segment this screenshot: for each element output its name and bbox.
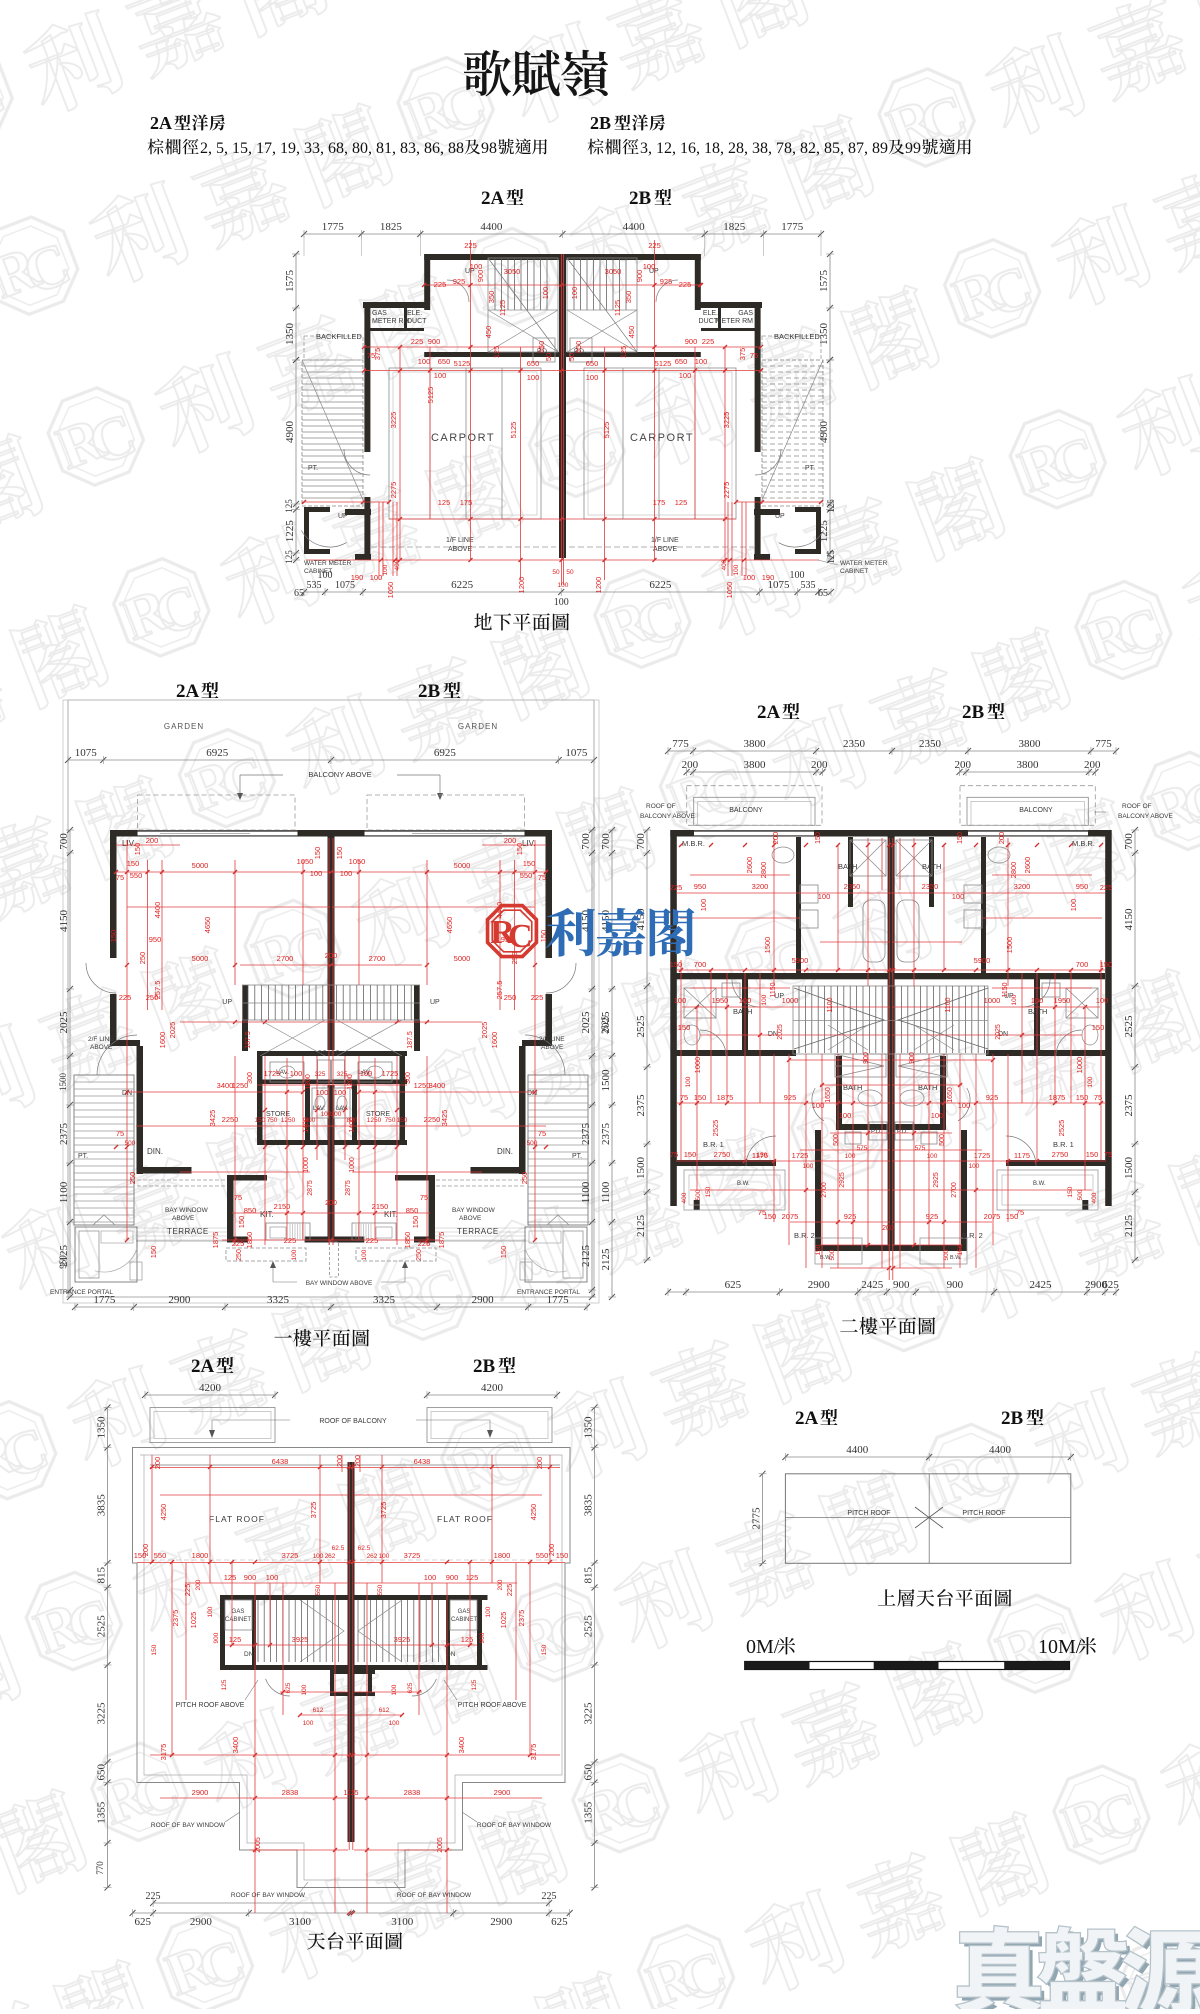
svg-text:2, 5, 15, 17, 19, 33, 68, 80,: 2, 5, 15, 17, 19, 33, 68, 80, 81, 83, 86… [200,140,464,157]
svg-text:2900: 2900 [494,1788,511,1797]
svg-text:2925: 2925 [933,1172,940,1188]
svg-text:2350: 2350 [844,882,861,891]
svg-text:1500: 1500 [58,1073,68,1092]
svg-text:200: 200 [997,832,1006,845]
svg-text:2075: 2075 [782,1212,799,1221]
svg-text:200: 200 [771,832,780,845]
svg-text:125: 125 [826,499,836,513]
svg-text:1650: 1650 [825,1087,832,1103]
svg-text:950: 950 [1076,882,1089,891]
svg-text:2B: 2B [590,113,611,133]
svg-text:150: 150 [133,843,142,856]
svg-text:2250: 2250 [424,1115,441,1124]
svg-text:225: 225 [1100,883,1113,892]
svg-text:100: 100 [310,869,323,878]
svg-text:900: 900 [685,337,698,346]
svg-text:ENTRANCE PORTAL: ENTRANCE PORTAL [50,1289,113,1296]
svg-text:625: 625 [135,1916,152,1928]
svg-text:1/F LINE: 1/F LINE [446,537,474,544]
svg-text:225: 225 [434,280,447,289]
svg-text:1575: 1575 [818,270,830,293]
svg-text:100: 100 [699,899,708,912]
svg-text:2275: 2275 [389,482,398,499]
svg-text:ROOF OF BAY WINDOW: ROOF OF BAY WINDOW [151,1822,226,1829]
svg-text:150: 150 [539,930,548,943]
svg-text:175: 175 [460,498,473,507]
svg-text:5000: 5000 [454,861,471,870]
svg-text:2600: 2600 [745,857,754,874]
svg-text:900: 900 [635,270,644,283]
svg-text:2A: 2A [150,113,172,133]
svg-text:3175: 3175 [529,1744,538,1761]
svg-text:2375: 2375 [580,1123,592,1146]
svg-text:2/F LINE: 2/F LINE [88,1036,114,1043]
svg-text:1850: 1850 [403,1232,412,1249]
svg-text:925: 925 [926,1212,939,1221]
svg-text:2700: 2700 [821,1182,828,1198]
svg-text:900: 900 [213,1632,220,1643]
svg-text:175: 175 [653,498,666,507]
svg-text:815: 815 [583,1566,595,1583]
svg-text:375: 375 [738,348,747,361]
svg-text:3800: 3800 [744,738,767,750]
svg-text:100: 100 [334,1088,347,1097]
svg-text:100: 100 [360,1069,373,1078]
svg-text:100: 100 [1096,996,1109,1005]
svg-text:1500: 1500 [763,937,772,954]
svg-text:100: 100 [586,373,599,382]
svg-text:100: 100 [570,287,579,300]
svg-text:2838: 2838 [282,1788,299,1797]
svg-text:1950: 1950 [1054,996,1071,1005]
svg-text:535: 535 [307,580,322,591]
svg-text:3835: 3835 [583,1494,595,1517]
svg-text:3725: 3725 [282,1551,299,1560]
svg-text:650: 650 [675,357,688,366]
svg-text:700: 700 [1076,960,1089,969]
svg-text:800: 800 [305,1117,316,1124]
svg-text:200: 200 [195,1579,202,1590]
svg-text:PITCH ROOF ABOVE: PITCH ROOF ABOVE [458,1702,527,1709]
svg-text:1800: 1800 [192,1551,209,1560]
svg-text:50: 50 [566,569,574,576]
svg-text:775: 775 [672,738,689,750]
svg-text:700: 700 [635,833,647,850]
svg-text:187.5: 187.5 [245,1031,252,1049]
svg-text:BALCONY ABOVE: BALCONY ABOVE [308,770,371,779]
svg-text:2275: 2275 [722,482,731,499]
svg-text:187.5: 187.5 [407,1031,414,1049]
svg-text:225: 225 [366,1236,379,1245]
svg-text:1250: 1250 [232,1081,249,1090]
svg-text:550: 550 [315,1584,322,1595]
svg-text:DUCT: DUCT [699,318,719,325]
svg-text:75: 75 [758,1208,766,1217]
svg-text:2025: 2025 [777,1024,784,1040]
svg-text:500: 500 [125,1140,136,1147]
svg-text:450: 450 [627,326,636,339]
svg-text:750: 750 [267,1117,278,1124]
svg-text:2525: 2525 [600,1016,610,1035]
svg-text:150: 150 [678,1023,691,1032]
svg-text:150: 150 [556,1551,569,1560]
svg-text:2425: 2425 [1030,1279,1053,1291]
svg-text:100: 100 [361,1249,368,1260]
svg-text:2125: 2125 [580,1245,592,1268]
svg-text:225: 225 [119,993,132,1002]
svg-text:B.W.: B.W. [1033,1181,1046,1187]
svg-text:500: 500 [943,1249,950,1260]
svg-text:2375: 2375 [1123,1094,1135,1117]
svg-text:200: 200 [325,951,338,960]
svg-text:CARPORT: CARPORT [630,432,694,444]
svg-text:4900: 4900 [284,421,296,444]
svg-text:2925: 2925 [839,1172,846,1188]
svg-text:2350: 2350 [919,738,942,750]
svg-text:225: 225 [531,993,544,1002]
svg-text:150: 150 [705,1186,712,1197]
svg-text:1200: 1200 [347,1074,354,1090]
svg-text:3325: 3325 [373,1294,396,1306]
svg-text:100: 100 [418,357,431,366]
svg-text:900: 900 [893,1279,910,1291]
svg-text:3800: 3800 [1019,738,1042,750]
svg-text:4250: 4250 [159,1504,168,1521]
svg-text:925: 925 [784,1093,797,1102]
svg-text:100: 100 [733,564,740,575]
svg-text:ROOF OF BAY WINDOW: ROOF OF BAY WINDOW [231,1892,306,1899]
svg-text:1075: 1075 [565,747,588,759]
svg-text:2750: 2750 [1052,1150,1069,1159]
svg-text:ABOVE: ABOVE [172,1215,195,1222]
svg-text:125: 125 [619,346,628,359]
svg-text:200: 200 [811,759,828,771]
svg-text:200: 200 [882,1225,894,1232]
svg-text:ELE.: ELE. [407,310,422,317]
svg-text:1100: 1100 [945,997,952,1012]
svg-text:500: 500 [695,1189,702,1200]
svg-text:3400: 3400 [217,1081,234,1090]
svg-text:1150: 1150 [770,982,777,997]
svg-text:200: 200 [141,1544,150,1557]
svg-text:1025: 1025 [189,1612,198,1629]
svg-text:LIV.: LIV. [522,839,536,848]
svg-text:BACKFILLED: BACKFILLED [774,332,820,341]
svg-text:2350: 2350 [843,738,866,750]
svg-text:1225: 1225 [284,520,296,543]
svg-text:1875: 1875 [1049,1093,1066,1102]
svg-text:150: 150 [1076,1093,1089,1102]
svg-text:BAY WINDOW: BAY WINDOW [165,1207,209,1214]
svg-text:4400: 4400 [989,1444,1012,1456]
svg-text:CABINET: CABINET [225,1617,251,1623]
svg-text:1200: 1200 [594,577,603,594]
svg-text:CABINET: CABINET [304,568,332,575]
svg-text:ABOVE: ABOVE [541,1044,564,1051]
svg-text:DN: DN [244,1651,254,1658]
svg-text:2005: 2005 [255,1837,262,1853]
svg-text:2125: 2125 [1123,1215,1135,1238]
svg-text:CABINET: CABINET [840,568,868,575]
svg-text:50: 50 [552,569,560,576]
svg-text:150: 150 [237,1216,246,1229]
svg-text:3800: 3800 [744,759,767,771]
svg-text:BATH: BATH [922,862,941,871]
svg-text:CARPORT: CARPORT [431,432,495,444]
svg-text:125: 125 [229,1635,242,1644]
svg-text:3835: 3835 [96,1494,108,1517]
svg-text:775: 775 [1095,738,1112,750]
svg-text:1875: 1875 [717,1093,734,1102]
svg-text:62.5: 62.5 [332,1545,345,1552]
svg-text:1100: 1100 [580,1181,592,1203]
svg-text:925: 925 [844,1212,857,1221]
svg-text:GAS: GAS [372,310,387,317]
svg-text:6925: 6925 [206,747,229,759]
svg-text:DN: DN [446,1651,456,1658]
svg-text:250: 250 [504,993,517,1002]
svg-text:550: 550 [130,871,143,880]
svg-text:100: 100 [303,1720,314,1727]
svg-text:5900: 5900 [974,956,991,965]
svg-text:100: 100 [370,573,383,582]
svg-text:2150: 2150 [274,1202,291,1211]
svg-text:2025: 2025 [995,1024,1002,1040]
svg-text:1050: 1050 [386,582,395,599]
svg-text:150: 150 [684,1150,697,1159]
svg-text:1875: 1875 [437,1232,446,1249]
svg-text:125: 125 [221,1679,228,1690]
svg-text:1100: 1100 [58,1181,70,1203]
svg-text:PITCH ROOF: PITCH ROOF [962,1510,1005,1517]
svg-text:2025: 2025 [580,1011,592,1034]
svg-text:5000: 5000 [192,954,209,963]
svg-text:5125: 5125 [509,422,518,439]
svg-text:125: 125 [438,498,451,507]
svg-text:1025: 1025 [499,1612,508,1629]
svg-text:100: 100 [1069,899,1078,912]
svg-text:1000: 1000 [693,1057,702,1074]
svg-text:PITCH ROOF: PITCH ROOF [847,1510,890,1517]
svg-text:200: 200 [682,759,699,771]
svg-text:2B: 2B [1001,1408,1024,1429]
svg-text:150: 150 [523,859,536,868]
svg-text:625: 625 [725,1279,742,1291]
svg-text:500: 500 [1077,1189,1084,1200]
svg-text:1950: 1950 [712,996,729,1005]
svg-text:650: 650 [438,357,451,366]
svg-text:125: 125 [492,346,501,359]
svg-text:3425: 3425 [208,1110,217,1127]
svg-text:GAS: GAS [738,310,753,317]
svg-text:150: 150 [313,847,322,860]
svg-text:500: 500 [833,1134,840,1146]
svg-text:400: 400 [681,1192,688,1203]
svg-text:GAS: GAS [458,1609,471,1615]
svg-text:650: 650 [96,1763,108,1780]
svg-text:1725: 1725 [264,1069,281,1078]
svg-text:100: 100 [527,373,540,382]
svg-text:5125: 5125 [426,387,435,404]
svg-text:100: 100 [470,262,483,271]
svg-text:750: 750 [385,1117,396,1124]
svg-text:100: 100 [1031,996,1044,1005]
svg-text:1800: 1800 [494,1551,511,1560]
svg-text:1825: 1825 [723,221,746,233]
svg-text:4200: 4200 [199,1382,222,1394]
svg-text:225: 225 [183,1584,192,1597]
svg-text:3225: 3225 [583,1702,595,1725]
svg-text:2A: 2A [757,702,781,723]
svg-text:100: 100 [313,1553,324,1560]
svg-text:100: 100 [695,357,708,366]
svg-text:75: 75 [680,1093,688,1102]
svg-text:DIN.: DIN. [147,1147,163,1156]
svg-text:250: 250 [128,1172,137,1185]
svg-text:3175: 3175 [159,1744,168,1761]
svg-text:1500: 1500 [1005,937,1014,954]
svg-text:1355: 1355 [96,1801,108,1824]
svg-text:DIN.: DIN. [497,1147,513,1156]
svg-text:100: 100 [382,564,389,575]
svg-text:1125: 1125 [343,1790,358,1797]
svg-text:1650: 1650 [947,1087,954,1103]
svg-text:100: 100 [958,1101,971,1110]
svg-text:500: 500 [829,1249,836,1260]
svg-text:400: 400 [1091,1192,1098,1203]
svg-text:100: 100 [818,892,831,901]
svg-text:350: 350 [487,291,496,304]
svg-text:950: 950 [58,1255,68,1269]
svg-text:262: 262 [325,1553,336,1560]
svg-text:P.D.: P.D. [871,1129,882,1135]
svg-text:B.R. 2: B.R. 2 [962,1231,983,1240]
svg-text:UP: UP [222,999,232,1006]
svg-text:150: 150 [109,930,118,943]
svg-text:1/F LINE: 1/F LINE [651,537,679,544]
svg-text:100: 100 [927,1153,938,1160]
svg-text:2B: 2B [629,188,652,209]
svg-text:1125: 1125 [613,300,622,316]
svg-text:1875: 1875 [211,1232,220,1249]
svg-text:612: 612 [313,1707,324,1714]
svg-text:BALCONY ABOVE: BALCONY ABOVE [640,813,695,820]
svg-text:BALCONY: BALCONY [1019,807,1053,814]
svg-text:2525: 2525 [96,1615,108,1638]
svg-text:2A: 2A [795,1408,819,1429]
svg-text:2700: 2700 [951,1182,958,1198]
svg-text:62.5: 62.5 [358,1545,371,1552]
svg-text:3200: 3200 [1014,882,1031,891]
svg-text:650: 650 [527,359,540,368]
svg-text:1725: 1725 [792,1151,809,1160]
svg-text:PT.: PT. [78,1153,88,1160]
svg-text:100: 100 [379,1553,390,1560]
svg-text:ROOF OF: ROOF OF [646,803,676,810]
svg-text:ELE.: ELE. [703,310,718,317]
svg-text:2A: 2A [481,188,505,209]
svg-text:125: 125 [461,1635,474,1644]
svg-text:BACKFILLED: BACKFILLED [316,332,362,341]
svg-text:2B: 2B [418,681,441,702]
svg-text:2900: 2900 [168,1294,191,1306]
svg-text:GAS: GAS [232,1609,245,1615]
svg-text:1050: 1050 [297,857,314,866]
svg-text:900: 900 [479,1632,486,1643]
svg-text:65: 65 [294,588,304,599]
svg-text:100: 100 [331,1111,342,1118]
svg-text:550: 550 [536,1551,549,1560]
svg-text:5000: 5000 [192,861,209,870]
svg-text:150: 150 [335,847,344,860]
svg-text:2900: 2900 [190,1916,213,1928]
svg-text:535: 535 [801,580,816,591]
svg-text:100: 100 [839,1111,852,1120]
svg-text:200: 200 [146,836,159,845]
svg-text:1050: 1050 [349,857,366,866]
svg-text:75: 75 [1104,1150,1112,1159]
svg-text:100: 100 [685,1076,692,1087]
svg-text:6438: 6438 [272,1457,289,1466]
svg-text:1775: 1775 [781,221,804,233]
svg-text:100: 100 [643,262,656,271]
svg-text:1000: 1000 [1075,1057,1084,1074]
svg-text:2425: 2425 [861,1279,884,1291]
svg-text:3725: 3725 [309,1502,318,1519]
svg-text:4400: 4400 [846,1444,869,1456]
svg-text:625: 625 [285,1682,292,1693]
svg-text:B.W.: B.W. [737,1181,750,1187]
svg-text:3925: 3925 [292,1635,309,1644]
svg-text:M.B.R.: M.B.R. [1072,839,1095,848]
svg-text:225: 225 [411,337,424,346]
svg-text:100: 100 [207,1606,214,1617]
svg-text:900: 900 [476,270,485,283]
svg-text:TERRACE: TERRACE [457,1227,499,1236]
svg-text:6438: 6438 [414,1457,431,1466]
svg-text:150: 150 [541,1644,548,1655]
svg-text:200: 200 [497,1579,504,1590]
svg-text:900: 900 [863,1052,870,1064]
svg-text:TERRACE: TERRACE [167,1227,209,1236]
svg-text:1200: 1200 [305,1074,312,1090]
svg-text:100: 100 [434,371,447,380]
svg-text:2525: 2525 [635,1015,647,1038]
svg-text:1000: 1000 [984,996,1001,1005]
svg-text:350: 350 [624,291,633,304]
svg-text:190: 190 [762,573,775,582]
svg-text:1350: 1350 [284,323,296,346]
svg-text:150: 150 [957,832,964,844]
svg-text:2750: 2750 [714,1150,731,1159]
svg-text:900: 900 [244,1573,257,1582]
svg-text:10M/: 10M/ [1038,1636,1082,1658]
svg-text:225: 225 [418,1239,431,1248]
svg-text:ROOF OF BAY WINDOW: ROOF OF BAY WINDOW [397,1892,472,1899]
svg-text:2775: 2775 [751,1507,763,1530]
svg-text:100: 100 [301,1684,308,1695]
svg-text:2375: 2375 [517,1610,526,1627]
svg-text:3725: 3725 [404,1551,421,1560]
svg-text:257.5: 257.5 [153,981,162,1000]
svg-text:100: 100 [739,996,752,1005]
svg-text:1600: 1600 [490,1032,499,1049]
svg-text:815: 815 [96,1566,108,1583]
svg-text:150: 150 [694,1093,707,1102]
svg-text:75: 75 [116,1129,124,1138]
svg-text:500: 500 [527,1140,538,1147]
svg-text:100: 100 [674,996,687,1005]
